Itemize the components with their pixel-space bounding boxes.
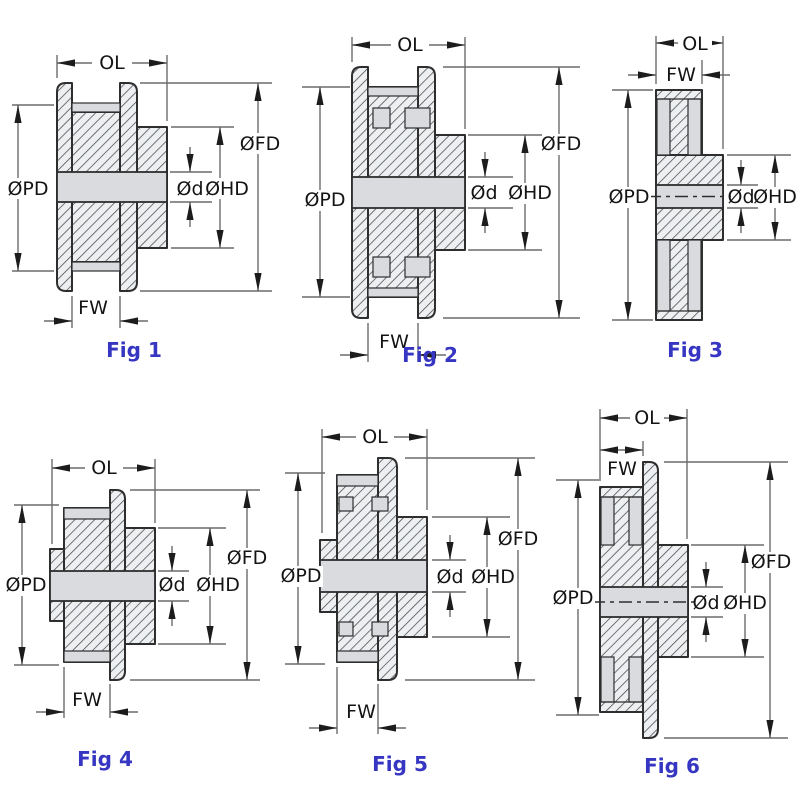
fig3-body bbox=[648, 90, 731, 320]
fig6-label-pd: ØPD bbox=[552, 587, 593, 609]
fig1-label-fd: ØFD bbox=[240, 133, 281, 155]
fig3-label-ol: OL bbox=[682, 33, 708, 55]
diagram-canvas: OL ØPD ØFD ØHD Ød FW bbox=[0, 0, 800, 800]
fig4-label-fw: FW bbox=[72, 689, 102, 711]
fig3-label-fw: FW bbox=[666, 64, 696, 86]
fig6-drawing: OL FW ØPD ØFD ØHD Ød Fig 6 bbox=[545, 375, 800, 800]
fig2-body bbox=[352, 67, 465, 318]
fig2-caption: Fig 2 bbox=[402, 343, 458, 367]
fig2-label-d: Ød bbox=[470, 182, 497, 204]
fig1-label-ol: OL bbox=[99, 52, 125, 74]
fig1-body bbox=[57, 83, 167, 291]
fig6-label-fw: FW bbox=[607, 458, 637, 480]
fig5-caption: Fig 5 bbox=[372, 752, 428, 776]
fig3-drawing: OL FW ØPD ØHD Ød Fig 3 bbox=[590, 0, 800, 375]
fig5-label-fd: ØFD bbox=[498, 528, 539, 550]
fig5-label-ol: OL bbox=[362, 426, 388, 448]
fig1-label-hd: ØHD bbox=[205, 178, 249, 200]
fig2-label-pd: ØPD bbox=[304, 189, 345, 211]
fig1-caption: Fig 1 bbox=[106, 338, 162, 362]
fig5-label-hd: ØHD bbox=[471, 566, 515, 588]
fig3-label-d: Ød bbox=[727, 186, 754, 208]
fig4-bore bbox=[50, 571, 155, 601]
fig4-label-fd: ØFD bbox=[227, 547, 268, 569]
fig1-bore bbox=[57, 172, 167, 202]
fig4-label-hd: ØHD bbox=[196, 574, 240, 596]
fig5-label-fw: FW bbox=[346, 701, 376, 723]
fig5-body bbox=[320, 458, 427, 680]
fig5-label-pd: ØPD bbox=[280, 565, 321, 587]
fig1-label-d: Ød bbox=[176, 178, 203, 200]
fig4-drawing: OL ØPD ØFD ØHD Ød FW bbox=[0, 375, 285, 800]
fig3-label-pd: ØPD bbox=[608, 186, 649, 208]
fig4-label-pd: ØPD bbox=[5, 574, 46, 596]
fig1-label-fw: FW bbox=[78, 297, 108, 319]
fig2-bore bbox=[352, 177, 465, 208]
fig2-label-hd: ØHD bbox=[508, 182, 552, 204]
fig4-label-d: Ød bbox=[158, 574, 185, 596]
fig5-drawing: OL ØPD ØFD ØHD Ød FW bbox=[275, 375, 560, 800]
fig2-label-ol: OL bbox=[397, 34, 423, 56]
fig5-label-d: Ød bbox=[436, 566, 463, 588]
fig4-body bbox=[50, 490, 155, 680]
fig6-label-d: Ød bbox=[692, 592, 719, 614]
fig2-drawing: OL ØPD ØFD ØHD Ød FW bbox=[285, 0, 590, 375]
fig5-bore bbox=[320, 560, 427, 592]
fig4-caption: Fig 4 bbox=[77, 747, 133, 771]
fig6-label-hd: ØHD bbox=[723, 592, 767, 614]
fig2-label-fd: ØFD bbox=[541, 133, 582, 155]
fig1-label-pd: ØPD bbox=[7, 178, 48, 200]
fig6-body bbox=[592, 462, 697, 738]
fig6-label-fd: ØFD bbox=[751, 551, 792, 573]
fig6-caption: Fig 6 bbox=[644, 754, 700, 778]
fig3-caption: Fig 3 bbox=[667, 338, 723, 362]
fig6-label-ol: OL bbox=[634, 407, 660, 429]
fig4-label-ol: OL bbox=[91, 457, 117, 479]
fig3-label-hd: ØHD bbox=[753, 186, 797, 208]
fig1-drawing: OL ØPD ØFD ØHD Ød FW bbox=[0, 0, 285, 375]
